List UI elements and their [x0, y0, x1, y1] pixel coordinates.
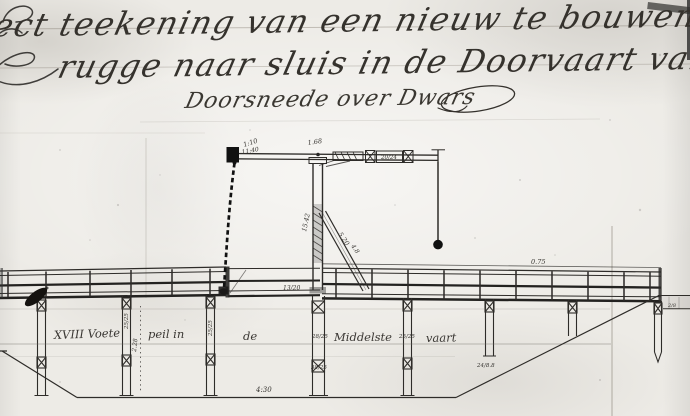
waterline-label: XVIII Voete peil in de Middelste vaart [53, 326, 457, 345]
balance-beam [227, 147, 446, 167]
dim-post-height: 15.42 [300, 213, 312, 233]
dim-pile3: 25/25 [208, 320, 214, 337]
dim-pile2: 25/25 [124, 313, 130, 330]
section-title: Doorsneede over Dwars [183, 85, 479, 114]
diagonal-braces [319, 211, 369, 291]
beam-left-pivot-block [227, 147, 240, 163]
dim-depth: 2.28 [131, 338, 139, 353]
waterline-label-part4: Middelste [333, 330, 392, 344]
left-end-post [1, 268, 4, 298]
movable-leaf-gap [226, 267, 321, 298]
dim-deck-gap: 13/20 [283, 285, 300, 292]
dim-pile4-lower: 38/25 [311, 365, 327, 371]
canal-profile [0, 296, 690, 398]
scanned-document-page: 1:10 11:40 1.68 20/24 0.75 13/20 15.42 5… [0, 0, 690, 416]
pile [204, 295, 218, 396]
dim-span: 0.75 [531, 258, 545, 266]
railing-right-span [322, 264, 662, 302]
counterweight [433, 162, 443, 249]
dim-pile5: 25/25 [398, 334, 415, 340]
dim-pile8: 2/8 [667, 303, 676, 309]
center-pier [309, 296, 328, 396]
pile [483, 299, 496, 356]
calligraphy-flourish-line2 [0, 53, 58, 85]
dim-brace-a: 5.20 [336, 231, 351, 247]
dim-pile4-upper: 28/25 [311, 334, 328, 340]
dim-beam-right: 20/24 [380, 155, 397, 161]
waterline-label-part3: de [243, 329, 257, 343]
dim-brace-b: 4.8 [349, 242, 361, 255]
bridge-elevation [0, 147, 690, 398]
pile [401, 298, 415, 396]
pile [568, 300, 577, 336]
dim-bottom-width: 4:30 [255, 386, 272, 394]
waterline-label-part2: peil in [148, 327, 184, 341]
dim-beam-mid: 1.68 [307, 137, 322, 147]
waterline-label-part1: XVIII Voete [53, 326, 121, 342]
waterline-label-part5: vaart [426, 330, 457, 345]
pile [35, 298, 49, 396]
counterweight-ball [433, 240, 443, 250]
piles [35, 295, 663, 396]
dim-pile6: 24/8.8 [476, 363, 495, 369]
pile [654, 301, 662, 362]
